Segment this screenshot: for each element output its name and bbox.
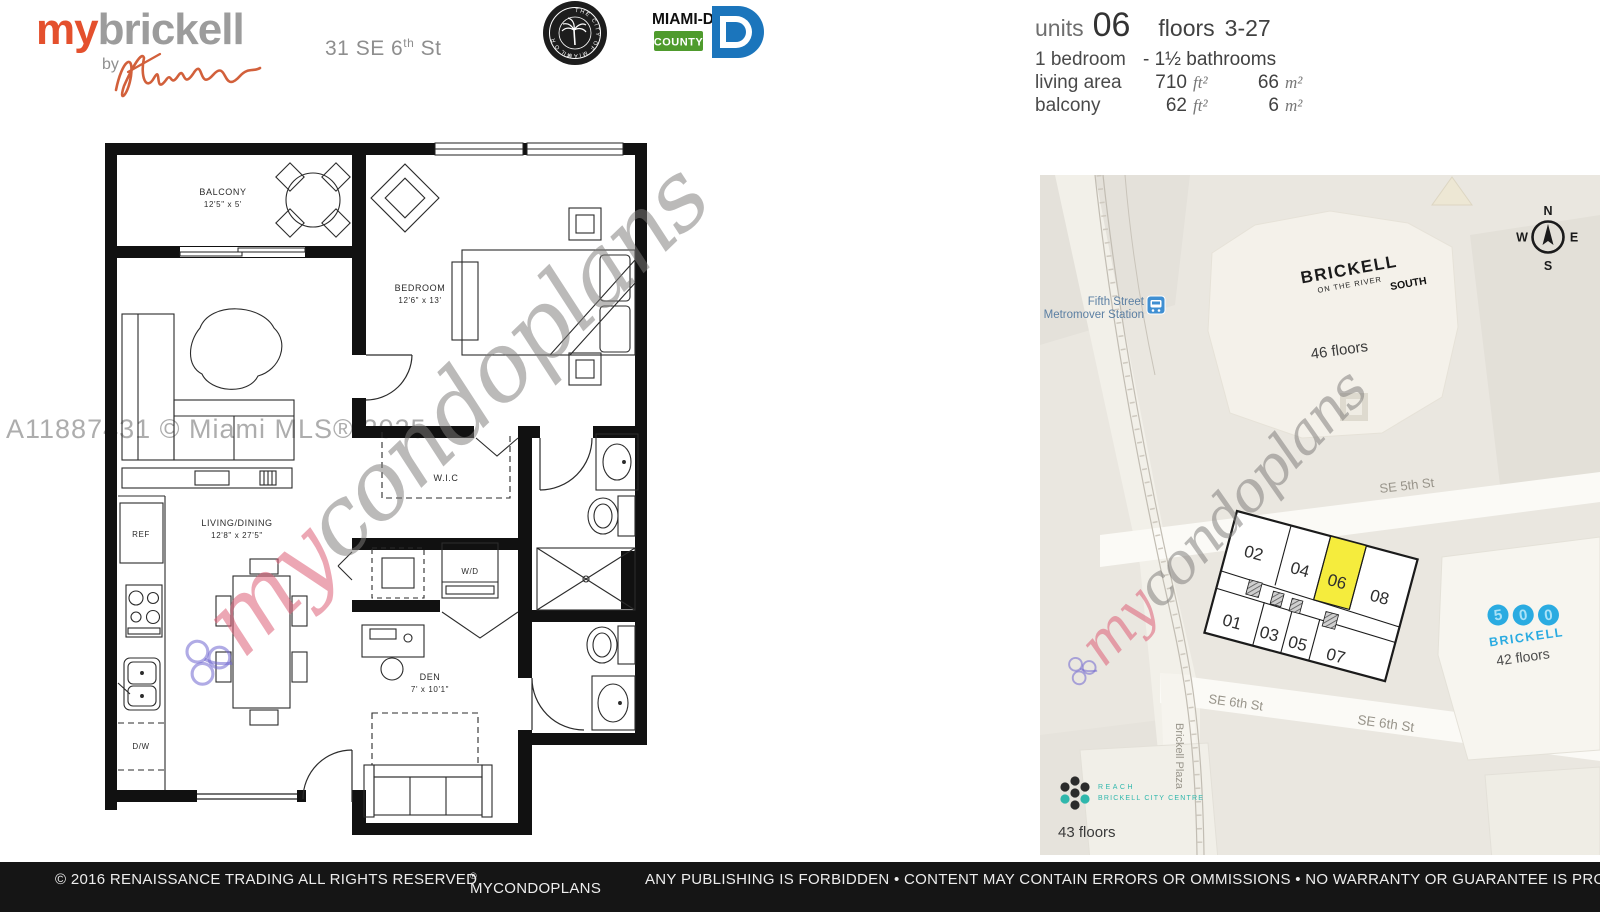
compass-w: W [1516,231,1528,245]
living-dims: 12'8" x 27'5" [211,531,263,540]
bedroom-dims: 12'6" x 13' [398,296,441,305]
dw-label: D/W [132,742,149,751]
building-brickell-on-river-footprint [1208,211,1458,438]
footer-brand: MYCONDOPLANS ® [470,871,477,889]
ft-unit: ft² [1193,73,1227,93]
living-area-m: 66 [1227,72,1279,94]
units-value: 06 [1093,6,1131,45]
bedroom-label: BEDROOM [395,283,446,293]
compass-s: S [1544,259,1552,273]
floors-value: 3-27 [1225,15,1271,42]
floors-label: floors [1158,15,1214,42]
wic-label: W.I.C [434,473,459,483]
miami-dade-county-logo: MIAMI-DADE COUNTY [652,4,770,62]
karim-signature [108,38,278,110]
station-label-line2: Metromover Station [1044,309,1144,321]
m-unit: m² [1285,96,1319,116]
balcony-label: BALCONY [199,187,246,197]
balcony-ft: 62 [1143,95,1187,117]
address-suffix: St [414,37,441,60]
living-area-label: living area [1035,72,1143,94]
units-label: units [1035,15,1084,42]
street-brickell-plaza: Brickell Plaza [1173,723,1185,790]
den-label: DEN [420,672,441,682]
transit-station-icon [1147,296,1165,314]
footer-copyright: © 2016 RENAISSANCE TRADING ALL RIGHTS RE… [55,871,477,888]
bathrooms-text: - 1½ bathrooms [1143,49,1276,71]
living-label: LIVING/DINING [201,518,272,528]
compass-n: N [1543,204,1552,218]
reach-floors: 43 floors [1058,824,1116,841]
walls [105,143,647,835]
location-map: Fifth Street Metromover Station BRICKELL… [1040,175,1600,855]
footer-disclaimer: ANY PUBLISHING IS FORBIDDEN • CONTENT MA… [645,871,1600,888]
address-prefix: 31 SE 6 [325,37,403,60]
station-label-line1: Fifth Street [1088,296,1145,308]
wd-label: W/D [461,567,478,576]
floorplan-drawing: BALCONY 12'5" x 5' BEDROOM 12'6" x 13' L… [100,138,660,838]
city-of-miami-seal: THE CITY OF MIAMI FLORIDA [533,0,617,70]
furniture [118,163,638,817]
address-ordinal: th [403,36,414,50]
room-labels: BALCONY 12'5" x 5' BEDROOM 12'6" x 13' L… [132,187,479,751]
footer-bar: © 2016 RENAISSANCE TRADING ALL RIGHTS RE… [0,862,1600,912]
floorplan-sheet: mybrickell by 31 SE 6th St THE CITY OF M… [0,0,1600,912]
den-dims: 7' x 10'1" [411,685,449,694]
footer-brand-text: MYCONDOPLANS [470,880,601,897]
bedrooms-text: 1 bedroom [1035,49,1143,71]
county-d-icon [712,6,764,58]
m-unit: m² [1285,73,1319,93]
county-sub: COUNTY [654,37,704,49]
balcony-m: 6 [1227,95,1279,117]
logo-my: my [36,5,98,54]
compass-e: E [1570,231,1578,245]
balcony-label: balcony [1035,95,1143,117]
windows [180,143,623,802]
balcony-dims: 12'5" x 5' [204,200,242,209]
ft-unit: ft² [1193,96,1227,116]
street-address: 31 SE 6th St [325,36,441,61]
unit-info-panel: units 06 floors 3-27 1 bedroom - 1½ bath… [1035,6,1365,118]
reach-line2: BRICKELL CITY CENTRE [1098,795,1204,802]
ref-label: REF [132,530,150,539]
reach-line1: REACH [1098,784,1135,791]
living-area-ft: 710 [1143,72,1187,94]
